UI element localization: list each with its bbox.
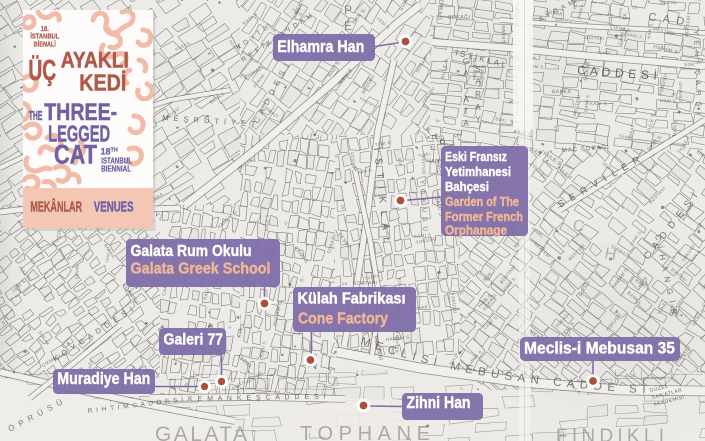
svg-text:S.: S. bbox=[282, 240, 287, 246]
svg-text:GALATA: GALATA bbox=[155, 423, 247, 441]
svg-text:SOKAK: SOKAK bbox=[555, 18, 570, 23]
svg-text:L: L bbox=[464, 82, 469, 91]
svg-text:A: A bbox=[463, 95, 469, 104]
svg-text:Bahçesi: Bahçesi bbox=[445, 180, 489, 194]
svg-text:HAN S.: HAN S. bbox=[672, 118, 678, 136]
svg-text:BANKA: BANKA bbox=[552, 89, 572, 95]
svg-text:ÇIKMAZI: ÇIKMAZI bbox=[678, 81, 683, 102]
svg-text:Orphanage: Orphanage bbox=[445, 224, 507, 238]
svg-text:A: A bbox=[475, 77, 481, 86]
svg-text:Zihni Han: Zihni Han bbox=[407, 393, 471, 412]
svg-text:Cone Factory: Cone Factory bbox=[298, 310, 388, 327]
svg-text:Elhamra Han: Elhamra Han bbox=[277, 37, 364, 56]
svg-text:Former French: Former French bbox=[445, 210, 523, 224]
svg-text:S.: S. bbox=[299, 277, 304, 283]
svg-text:KEDİ: KEDİ bbox=[79, 70, 126, 96]
svg-text:Galata Rum Okulu: Galata Rum Okulu bbox=[131, 243, 252, 260]
svg-text:S.: S. bbox=[671, 91, 677, 97]
svg-text:A: A bbox=[475, 103, 481, 112]
svg-text:TÜNEL: TÜNEL bbox=[597, 50, 612, 56]
svg-text:Y: Y bbox=[475, 115, 481, 124]
svg-text:MEKÂNLAR: MEKÂNLAR bbox=[30, 197, 82, 215]
svg-text:ÇEŞME: ÇEŞME bbox=[501, 25, 506, 43]
svg-text:BOSTANI: BOSTANI bbox=[353, 280, 378, 287]
svg-text:ÇK.: ÇK. bbox=[622, 11, 628, 20]
svg-text:FINDIKLI: FINDIKLI bbox=[556, 426, 664, 441]
svg-text:Külah Fabrikası: Külah Fabrikası bbox=[298, 291, 406, 308]
svg-text:MEKTEBİ: MEKTEBİ bbox=[421, 155, 427, 175]
svg-text:S.: S. bbox=[340, 204, 346, 211]
svg-text:KADI S.: KADI S. bbox=[590, 101, 609, 106]
svg-text:A: A bbox=[463, 119, 469, 128]
svg-text:THE: THE bbox=[29, 108, 43, 123]
svg-text:HAN S.: HAN S. bbox=[660, 98, 678, 104]
svg-text:A: A bbox=[463, 69, 469, 78]
svg-text:Muradiye Han: Muradiye Han bbox=[57, 370, 150, 388]
svg-text:SOKAK: SOKAK bbox=[660, 0, 677, 5]
svg-text:S: S bbox=[475, 65, 480, 74]
svg-text:CAT: CAT bbox=[54, 139, 97, 169]
svg-text:G: G bbox=[463, 57, 469, 66]
svg-text:R: R bbox=[475, 90, 481, 99]
svg-text:Garden of The: Garden of The bbox=[445, 195, 519, 209]
svg-text:Galata Greek School: Galata Greek School bbox=[131, 261, 271, 278]
svg-text:ÜÇ: ÜÇ bbox=[28, 55, 56, 87]
svg-text:T: T bbox=[464, 107, 469, 116]
svg-text:VENUES: VENUES bbox=[94, 199, 134, 215]
svg-text:ÇK.: ÇK. bbox=[342, 282, 349, 286]
svg-text:ÇK.: ÇK. bbox=[554, 124, 558, 131]
svg-text:SOKAĞI: SOKAĞI bbox=[448, 14, 470, 21]
svg-text:BIENNIAL: BIENNIAL bbox=[101, 164, 131, 174]
svg-text:KULE S.: KULE S. bbox=[264, 213, 270, 231]
svg-text:Galeri 77: Galeri 77 bbox=[164, 332, 224, 349]
svg-text:Meclis-i Mebusan 35: Meclis-i Mebusan 35 bbox=[524, 340, 675, 358]
svg-text:E: E bbox=[344, 19, 352, 33]
svg-text:Yetimhanesi: Yetimhanesi bbox=[445, 165, 511, 179]
svg-text:S.: S. bbox=[508, 69, 513, 75]
svg-text:MEKTEBİ: MEKTEBİ bbox=[585, 35, 604, 41]
svg-text:ÇEŞME: ÇEŞME bbox=[75, 264, 80, 279]
svg-text:TOPHANE: TOPHANE bbox=[300, 423, 430, 441]
svg-text:Eski Fransız: Eski Fransız bbox=[445, 150, 507, 164]
svg-text:P: P bbox=[344, 3, 352, 17]
svg-text:BİENALİ: BİENALİ bbox=[34, 39, 56, 48]
